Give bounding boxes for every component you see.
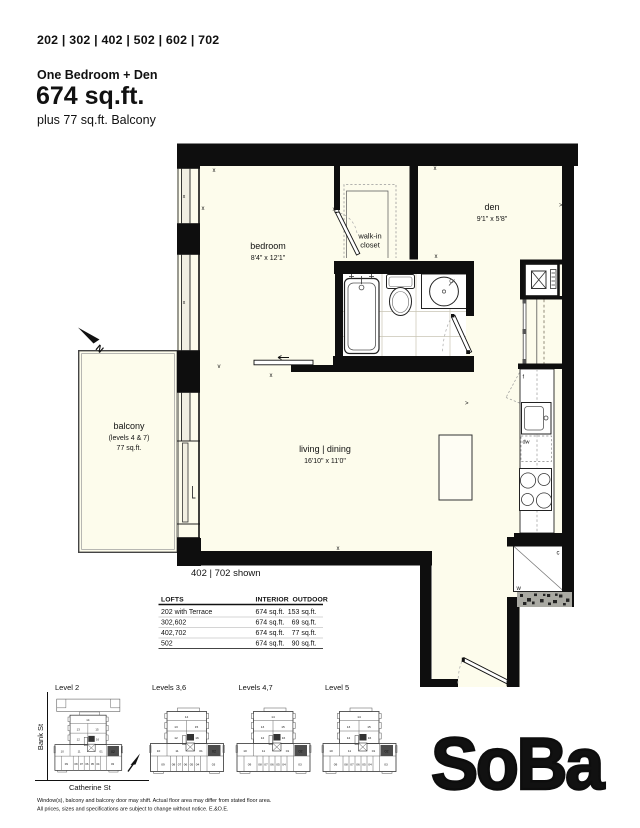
svg-text:502: 502 (161, 641, 173, 648)
svg-text:den: den (484, 202, 499, 212)
svg-text:INTERIOR: INTERIOR (256, 597, 289, 604)
svg-text:402 | 702 shown: 402 | 702 shown (191, 568, 261, 579)
svg-text:8'4" x 12'1": 8'4" x 12'1" (251, 255, 286, 262)
svg-text:walk-in: walk-in (357, 232, 381, 241)
svg-text:x: x (434, 166, 437, 172)
svg-text:674 sq.ft.: 674 sq.ft. (256, 641, 285, 648)
svg-text:plus 77 sq.ft. Balcony: plus 77 sq.ft. Balcony (37, 113, 157, 127)
svg-text:w: w (516, 586, 522, 592)
svg-text:674 sq.ft.: 674 sq.ft. (36, 82, 144, 110)
svg-text:x: x (202, 206, 205, 212)
svg-text:x: x (270, 373, 273, 379)
svg-text:One Bedroom + Den: One Bedroom + Den (37, 68, 158, 82)
svg-text:77 sq.ft.: 77 sq.ft. (117, 445, 142, 452)
svg-text:>: > (465, 401, 469, 407)
svg-text:LOFTS: LOFTS (161, 597, 184, 604)
svg-text:>: > (559, 203, 563, 209)
svg-text:Bank St: Bank St (36, 723, 45, 750)
svg-text:x: x (333, 207, 336, 213)
svg-text:Levels 4,7: Levels 4,7 (239, 683, 273, 692)
svg-text:Levels 3,6: Levels 3,6 (152, 683, 186, 692)
svg-text:c: c (557, 551, 560, 557)
svg-text:90 sq.ft.: 90 sq.ft. (292, 641, 317, 648)
svg-text:202 | 302 | 402 | 502 | 602 |: 202 | 302 | 402 | 502 | 602 | 702 (37, 33, 219, 47)
svg-text:674 sq.ft.: 674 sq.ft. (256, 630, 285, 637)
svg-text:674 sq.ft.: 674 sq.ft. (256, 609, 285, 616)
svg-text:77 sq.ft.: 77 sq.ft. (292, 630, 317, 637)
svg-text:16'10" x 11'0": 16'10" x 11'0" (304, 458, 346, 465)
svg-text:Window(s), balcony and balcony: Window(s), balcony and balcony door may … (37, 798, 271, 804)
svg-text:dw: dw (523, 440, 530, 446)
svg-text:v: v (218, 364, 221, 370)
svg-text:x: x (213, 168, 216, 174)
svg-text:SoBa: SoBa (431, 724, 606, 805)
svg-text:living | dining: living | dining (299, 444, 351, 454)
svg-text:All prices, sizes and specific: All prices, sizes and specifications are… (37, 807, 228, 813)
svg-text:153 sq.ft.: 153 sq.ft. (288, 609, 317, 616)
svg-text:9'1" x 5'8": 9'1" x 5'8" (477, 216, 508, 223)
svg-text:69 sq.ft.: 69 sq.ft. (292, 620, 317, 627)
svg-text:402,702: 402,702 (161, 630, 186, 637)
svg-text:closet: closet (360, 241, 381, 250)
svg-text:674 sq.ft.: 674 sq.ft. (256, 620, 285, 627)
svg-text:OUTDOOR: OUTDOOR (293, 597, 328, 604)
svg-text:x: x (435, 254, 438, 260)
svg-text:202 with Terrace: 202 with Terrace (161, 609, 212, 616)
svg-text:Catherine St: Catherine St (69, 783, 112, 792)
svg-text:302,602: 302,602 (161, 620, 186, 627)
svg-text:Level 2: Level 2 (55, 683, 79, 692)
svg-text:(levels 4 & 7): (levels 4 & 7) (109, 435, 150, 442)
svg-text:balcony: balcony (113, 421, 145, 431)
svg-text:bedroom: bedroom (250, 241, 286, 251)
svg-text:Level 5: Level 5 (325, 683, 349, 692)
svg-text:x: x (337, 546, 340, 552)
